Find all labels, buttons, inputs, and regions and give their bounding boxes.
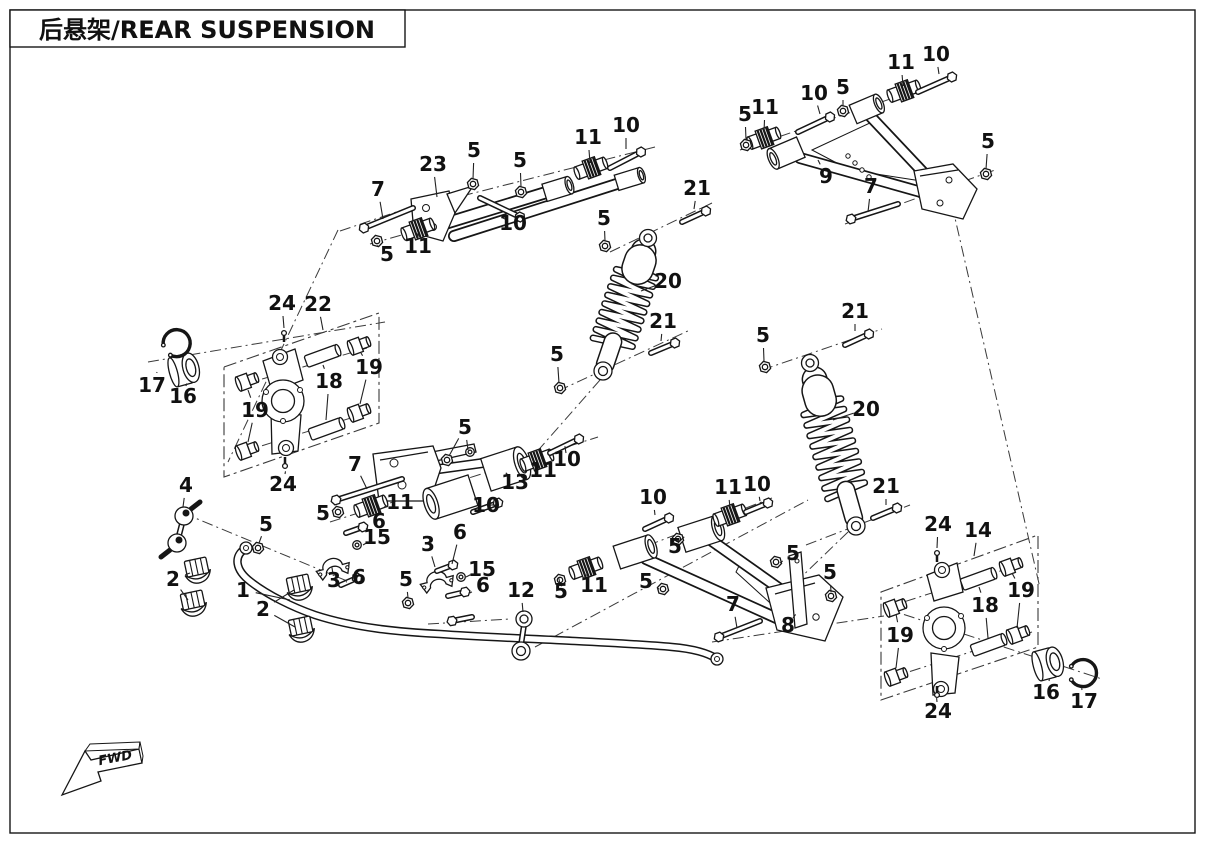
callout-5: 5 xyxy=(668,534,682,558)
drawing-border xyxy=(10,10,1195,833)
nut xyxy=(825,590,836,601)
callout-5: 5 xyxy=(823,560,837,584)
callout-10: 10 xyxy=(612,113,640,137)
callout-leader xyxy=(937,537,938,548)
callout-5: 5 xyxy=(836,75,850,99)
callout-10: 10 xyxy=(499,211,527,235)
callout-6: 6 xyxy=(476,573,490,597)
callout-5: 5 xyxy=(554,579,568,603)
callout-19: 19 xyxy=(886,623,914,647)
nut xyxy=(252,542,263,553)
callout-19: 19 xyxy=(241,398,269,422)
callout-5: 5 xyxy=(259,512,273,536)
callout-5: 5 xyxy=(639,569,653,593)
callout-3: 3 xyxy=(421,532,435,556)
nut xyxy=(770,556,781,567)
callout-17: 17 xyxy=(1070,689,1098,713)
callout-5: 5 xyxy=(597,206,611,230)
callout-12: 12 xyxy=(507,578,535,602)
callout-19: 19 xyxy=(1007,578,1035,602)
callout-20: 20 xyxy=(654,269,682,293)
callout-23: 23 xyxy=(419,152,447,176)
callout-5: 5 xyxy=(550,342,564,366)
callout-5: 5 xyxy=(316,501,330,525)
callout-21: 21 xyxy=(683,176,711,200)
callout-11: 11 xyxy=(887,50,915,74)
callout-5: 5 xyxy=(380,242,394,266)
callout-19: 19 xyxy=(355,355,383,379)
nut xyxy=(402,597,413,608)
callout-16: 16 xyxy=(1032,680,1060,704)
callout-11: 11 xyxy=(404,234,432,258)
nut xyxy=(515,186,526,197)
callout-11: 11 xyxy=(751,95,779,119)
callout-2: 2 xyxy=(166,567,180,591)
callout-3: 3 xyxy=(327,568,341,592)
nut xyxy=(554,382,565,393)
callout-5: 5 xyxy=(458,415,472,439)
callout-18: 18 xyxy=(315,369,343,393)
callout-9: 9 xyxy=(819,164,833,188)
callout-13: 13 xyxy=(501,470,529,494)
callout-5: 5 xyxy=(756,323,770,347)
callout-10: 10 xyxy=(472,493,500,517)
callout-20: 20 xyxy=(852,397,880,421)
nut xyxy=(740,139,751,150)
callout-7: 7 xyxy=(348,452,362,476)
callout-11: 11 xyxy=(714,475,742,499)
callout-leader xyxy=(764,120,765,132)
callout-17: 17 xyxy=(138,373,166,397)
callout-leader xyxy=(377,245,378,246)
callout-5: 5 xyxy=(467,138,481,162)
nut xyxy=(837,105,848,116)
callout-5: 5 xyxy=(513,148,527,172)
callout-10: 10 xyxy=(922,42,950,66)
nut xyxy=(467,178,478,189)
link-ball xyxy=(175,507,193,525)
nut xyxy=(657,583,668,594)
callout-22: 22 xyxy=(304,292,332,316)
callout-11: 11 xyxy=(580,573,608,597)
washer xyxy=(466,448,475,457)
callout-24: 24 xyxy=(924,512,952,536)
callout-5: 5 xyxy=(738,102,752,126)
callout-24: 24 xyxy=(268,291,296,315)
callout-6: 6 xyxy=(352,565,366,589)
callout-10: 10 xyxy=(553,447,581,471)
nut xyxy=(759,361,770,372)
parts-catalog-page: 后悬架/REAR SUSPENSION xyxy=(0,0,1205,843)
callout-leader xyxy=(759,497,760,501)
callout-leader xyxy=(661,334,662,341)
callout-7: 7 xyxy=(726,592,740,616)
callout-11: 11 xyxy=(386,490,414,514)
callout-24: 24 xyxy=(924,699,952,723)
callout-21: 21 xyxy=(872,474,900,498)
callout-21: 21 xyxy=(649,309,677,333)
callout-leader xyxy=(521,173,522,187)
callout-8: 8 xyxy=(781,613,795,637)
callout-21: 21 xyxy=(841,299,869,323)
callout-1: 1 xyxy=(236,578,250,602)
nut xyxy=(599,240,610,251)
callout-5: 5 xyxy=(786,541,800,565)
title-block: 后悬架/REAR SUSPENSION xyxy=(10,10,405,47)
callout-16: 16 xyxy=(169,384,197,408)
callout-15: 15 xyxy=(363,525,391,549)
callout-leader xyxy=(764,348,765,361)
callout-leader xyxy=(746,127,747,140)
callout-leader xyxy=(407,592,408,598)
page-title: 后悬架/REAR SUSPENSION xyxy=(39,16,375,44)
callout-24: 24 xyxy=(269,472,297,496)
callout-11: 11 xyxy=(574,125,602,149)
callout-leader xyxy=(473,163,474,179)
callout-6: 6 xyxy=(453,520,467,544)
callout-10: 10 xyxy=(743,472,771,496)
link-ball xyxy=(168,534,186,552)
callout-7: 7 xyxy=(864,174,878,198)
callout-5: 5 xyxy=(399,567,413,591)
callout-leader xyxy=(654,510,655,515)
callout-7: 7 xyxy=(371,177,385,201)
nut xyxy=(441,454,452,465)
callout-10: 10 xyxy=(800,81,828,105)
rear-suspension-diagram: 后悬架/REAR SUSPENSION xyxy=(0,0,1205,843)
nut xyxy=(980,168,991,179)
callout-4: 4 xyxy=(179,473,193,497)
washer xyxy=(457,573,466,582)
callout-18: 18 xyxy=(971,593,999,617)
callout-5: 5 xyxy=(981,129,995,153)
washer xyxy=(353,541,362,550)
callout-2: 2 xyxy=(256,597,270,621)
callout-14: 14 xyxy=(964,518,992,542)
nut xyxy=(332,506,343,517)
callout-10: 10 xyxy=(639,485,667,509)
